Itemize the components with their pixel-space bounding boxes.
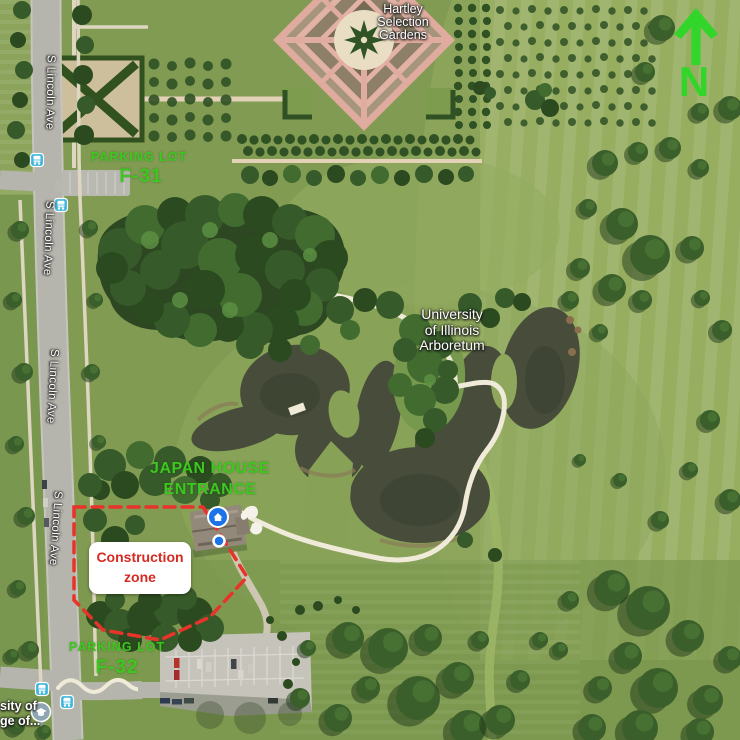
bus-stop-icon[interactable]: [55, 199, 68, 212]
construction-zone-callout: Construction zone: [89, 542, 191, 594]
north-indicator: N: [666, 60, 722, 104]
location-dot[interactable]: [214, 536, 225, 547]
street-label-lincoln-1: S Lincoln Ave: [43, 55, 56, 139]
hartley-gardens-label: Hartley Selection Gardens: [343, 3, 463, 42]
clipped-poi-label: sity of ge of...: [0, 699, 40, 728]
bus-stop-icon[interactable]: [36, 683, 49, 696]
map-canvas: [0, 0, 740, 740]
bus-stop-icon[interactable]: [31, 154, 44, 167]
satellite-map[interactable]: Hartley Selection Gardens University of …: [0, 0, 740, 740]
parking-lot-f32-label: PARKING LOT F-32: [57, 640, 177, 679]
japan-house-marker[interactable]: [208, 507, 228, 527]
bus-stop-icon[interactable]: [61, 696, 74, 709]
parking-lot-f31-label: PARKING LOT F-31: [79, 150, 199, 188]
arboretum-label: University of Illinois Arboretum: [392, 307, 512, 354]
japan-house-entrance-label: JAPAN HOUSE ENTRANCE: [135, 460, 285, 499]
